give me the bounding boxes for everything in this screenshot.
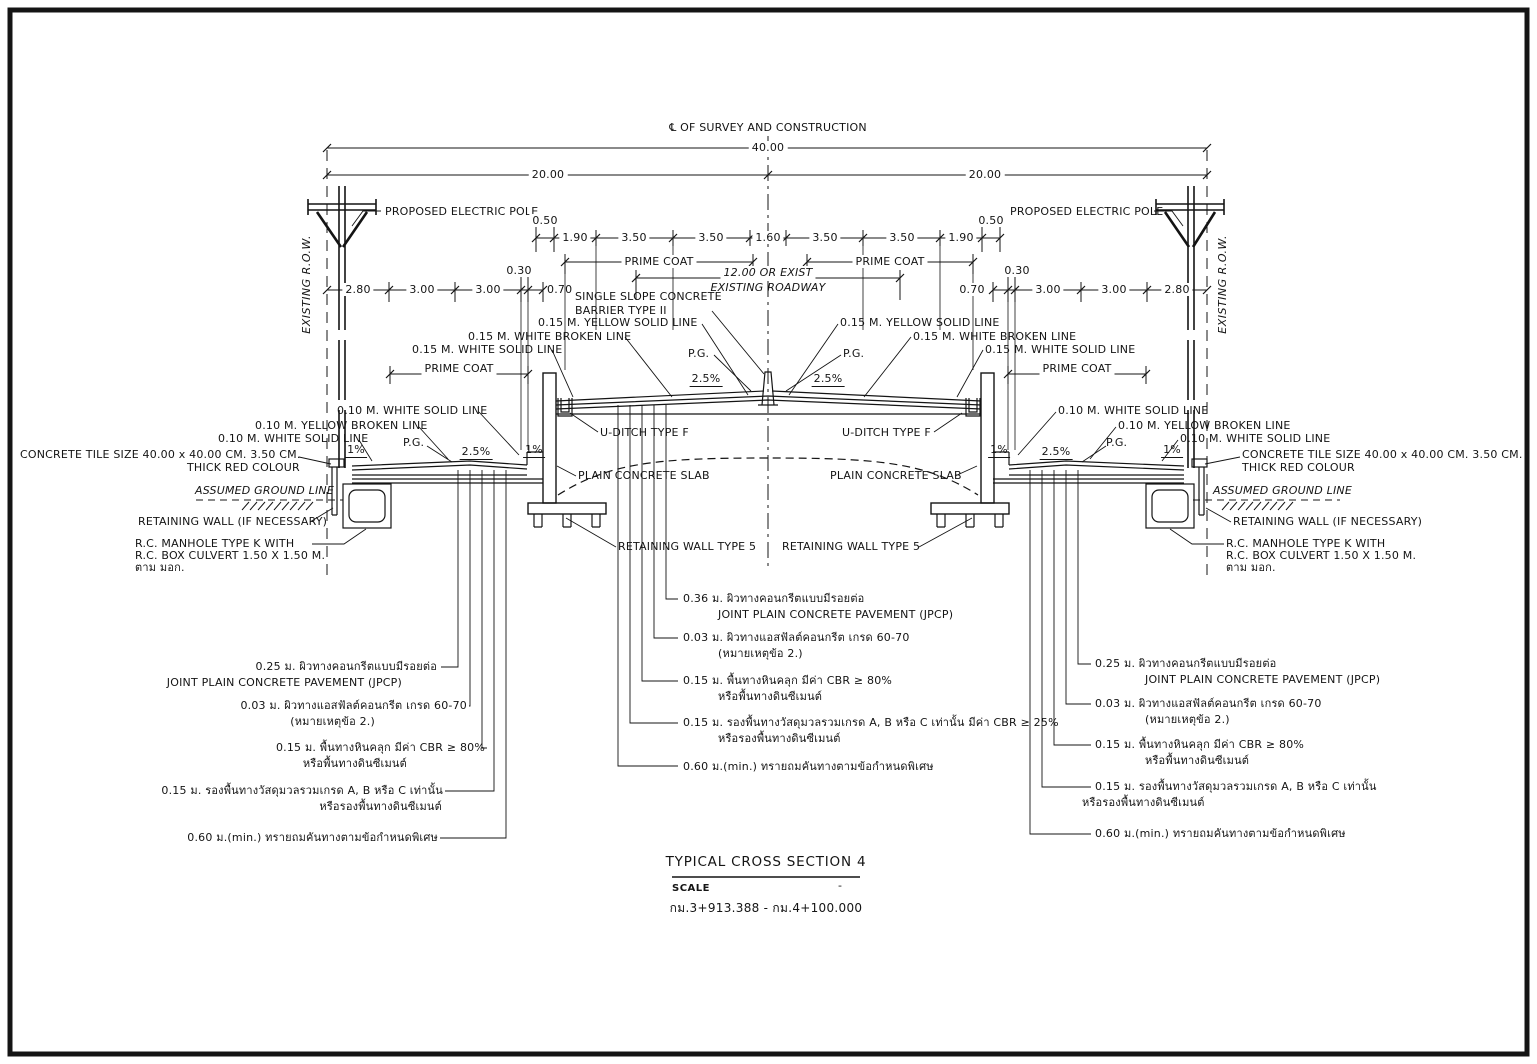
dim-service-right-0: 0.70 [956,283,987,296]
manhole-right-line3: ตาม มอก. [1226,561,1276,574]
right-layer-r3a: 0.15 ม. พื้นทางหินคลุก มีค่า CBR ≥ 80% [1095,738,1304,751]
retaining-wall5-label-right: RETAINING WALL TYPE 5 [782,540,920,553]
dim-service-right-1: 0.30 [1001,264,1032,277]
dim-lane-6: 3.50 [886,231,917,244]
dim-service-left-4: 0.70 [547,283,572,296]
pg-center-right: P.G. [843,347,864,360]
assumed-ground-left: ASSUMED GROUND LINE [195,484,334,497]
concrete-tile-left-line2: THICK RED COLOUR [187,461,300,474]
left-layer-r3a: 0.15 ม. พื้นทางหินคลุก มีค่า CBR ≥ 80% [276,741,485,754]
existing-row-right: EXISTING R.O.W. [1216,235,1229,334]
slope-1-right-b: 1% [1161,443,1183,456]
center-layer-r5a: 0.60 ม.(min.) ทรายถมคันทางตามข้อกำหนดพิเ… [683,760,934,773]
left-layer-r3b: หรือพื้นทางดินซีเมนต์ [303,757,407,770]
dim-lane-2: 3.50 [618,231,649,244]
right-layer-r1b: JOINT PLAIN CONCRETE PAVEMENT (JPCP) [1145,673,1380,686]
center-layer-r2a: 0.03 ม. ผิวทางแอสฟัลต์คอนกรีต เกรด 60-70 [683,631,910,644]
station-range: กม.3+913.388 - กม.4+100.000 [670,902,863,915]
white-broken-015-left: 0.15 M. WHITE BROKEN LINE [468,330,631,343]
u-ditch-label-left: U-DITCH TYPE F [600,426,689,439]
left-layer-r4b: หรือรองพื้นทางดินซีเมนต์ [319,800,442,813]
center-layer-r3a: 0.15 ม. พื้นทางหินคลุก มีค่า CBR ≥ 80% [683,674,892,687]
dim-lane-0: 0.50 [529,214,560,227]
white-solid-010-top-left: 0.10 M. WHITE SOLID LINE [337,404,487,417]
white-solid-015-right: 0.15 M. WHITE SOLID LINE [985,343,1135,356]
existing-row-left: EXISTING R.O.W. [300,235,313,334]
yellow-solid-015-left: 0.15 M. YELLOW SOLID LINE [538,316,698,329]
slope-1-left-b: 1% [523,443,545,456]
left-layer-r1a: 0.25 ม. ผิวทางคอนกรีตแบบมีรอยต่อ [256,660,437,673]
retaining-wall5-label-left: RETAINING WALL TYPE 5 [618,540,756,553]
left-layer-r5a: 0.60 ม.(min.) ทรายถมคันทางตามข้อกำหนดพิเ… [187,831,438,844]
slope-25-service-right: 2.5% [1040,445,1073,458]
dim-overall: 40.00 [749,141,788,154]
dim-lane-7: 1.90 [945,231,976,244]
right-layer-r4a: 0.15 ม. รองพื้นทางวัสดุมวลรวมเกรด A, B ห… [1095,780,1377,793]
prime-coat-outer-left: PRIME COAT [422,362,497,375]
dim-service-right-2: 3.00 [1032,283,1063,296]
right-layer-r2b: (หมายเหตุข้อ 2.) [1145,713,1230,726]
slope-1-left-a: 1% [345,443,367,456]
retaining-wall-necessary-right: RETAINING WALL (IF NECESSARY) [1233,515,1422,528]
right-layer-r5a: 0.60 ม.(min.) ทรายถมคันทางตามข้อกำหนดพิเ… [1095,827,1346,840]
retaining-wall-necessary-left: RETAINING WALL (IF NECESSARY) [138,515,327,528]
yellow-broken-010-left: 0.10 M. YELLOW BROKEN LINE [255,419,428,432]
right-layer-r2a: 0.03 ม. ผิวทางแอสฟัลต์คอนกรีต เกรด 60-70 [1095,697,1322,710]
white-solid-010-bot-right: 0.10 M. WHITE SOLID LINE [1180,432,1330,445]
dim-lane-5: 3.50 [809,231,840,244]
dim-lane-1: 1.90 [559,231,590,244]
pg-service-right: P.G. [1106,436,1127,449]
roadway-width-line2: EXISTING ROADWAY [711,281,826,294]
plain-slab-label-left: PLAIN CONCRETE SLAB [578,469,710,482]
dim-service-left-1: 3.00 [406,283,437,296]
electric-pole-label-right: PROPOSED ELECTRIC POLE [1010,205,1163,218]
concrete-tile-left-line1: CONCRETE TILE SIZE 40.00 x 40.00 CM. 3.5… [20,448,301,461]
prime-coat-center-right: PRIME COAT [853,255,928,268]
pg-service-left: P.G. [403,436,424,449]
dim-lane-4: 1.60 [752,231,783,244]
center-layer-r1a: 0.36 ม. ผิวทางคอนกรีตแบบมีรอยต่อ [683,592,864,605]
dim-service-left-3: 0.30 [503,264,534,277]
u-ditch-label-right: U-DITCH TYPE F [842,426,931,439]
left-layer-r2a: 0.03 ม. ผิวทางแอสฟัลต์คอนกรีต เกรด 60-70 [240,699,467,712]
roadway-width-line1: 12.00 OR EXIST [720,266,815,279]
concrete-tile-right-line1: CONCRETE TILE SIZE 40.00 x 40.00 CM. 3.5… [1242,448,1523,461]
center-layer-r4a: 0.15 ม. รองพื้นทางวัสดุมวลรวมเกรด A, B ห… [683,716,1059,729]
slope-1-right-a: 1% [988,443,1010,456]
assumed-ground-right: ASSUMED GROUND LINE [1213,484,1352,497]
layer-leaders-right [1030,470,1091,834]
drawing-sheet: ℄ OF SURVEY AND CONSTRUCTION 40.00 20.00… [0,0,1537,1064]
plain-slab-label-right: PLAIN CONCRETE SLAB [830,469,962,482]
white-solid-015-left: 0.15 M. WHITE SOLID LINE [412,343,562,356]
layer-leaders-center [618,405,678,766]
dim-lane-3: 3.50 [695,231,726,244]
scale-label: SCALE [672,882,710,895]
label-leaders [299,211,1240,547]
right-layer-r3b: หรือพื้นทางดินซีเมนต์ [1145,754,1249,767]
prime-coat-outer-right: PRIME COAT [1040,362,1115,375]
center-layer-r3b: หรือพื้นทางดินซีเมนต์ [718,690,822,703]
manhole-left-line3: ตาม มอก. [135,561,185,574]
yellow-broken-010-right: 0.10 M. YELLOW BROKEN LINE [1118,419,1291,432]
dim-half-left: 20.00 [529,168,568,181]
electric-pole-label-left: PROPOSED ELECTRIC POLE [385,205,538,218]
left-layer-r4a: 0.15 ม. รองพื้นทางวัสดุมวลรวมเกรด A, B ห… [161,784,443,797]
prime-coat-center-left: PRIME COAT [622,255,697,268]
dim-service-right-3: 3.00 [1098,283,1129,296]
centerline-label: ℄ OF SURVEY AND CONSTRUCTION [669,121,867,134]
left-layer-r2b: (หมายเหตุข้อ 2.) [290,715,375,728]
right-layer-r1a: 0.25 ม. ผิวทางคอนกรีตแบบมีรอยต่อ [1095,657,1276,670]
scale-value: - [838,879,842,892]
slope-25-service-left: 2.5% [460,445,493,458]
concrete-tile-right-line2: THICK RED COLOUR [1242,461,1355,474]
barrier-label-line1: SINGLE SLOPE CONCRETE [575,290,722,303]
dim-half-right: 20.00 [966,168,1005,181]
drawing-title: TYPICAL CROSS SECTION 4 [666,856,867,869]
center-layer-r4b: หรือรองพื้นทางดินซีเมนต์ [718,732,841,745]
left-layer-r1b: JOINT PLAIN CONCRETE PAVEMENT (JPCP) [167,676,402,689]
layer-leaders-left [440,470,506,838]
yellow-solid-015-right: 0.15 M. YELLOW SOLID LINE [840,316,1000,329]
dim-lane-8: 0.50 [975,214,1006,227]
dim-service-left-2: 3.00 [472,283,503,296]
pg-center-left: P.G. [688,347,709,360]
slope-25-center-left: 2.5% [690,372,723,385]
dim-service-right-4: 2.80 [1161,283,1192,296]
white-broken-015-right: 0.15 M. WHITE BROKEN LINE [913,330,1076,343]
right-layer-r4b: หรือรองพื้นทางดินซีเมนต์ [1082,796,1205,809]
white-solid-010-top-right: 0.10 M. WHITE SOLID LINE [1058,404,1208,417]
center-layer-r1b: JOINT PLAIN CONCRETE PAVEMENT (JPCP) [718,608,953,621]
dim-service-left-0: 2.80 [342,283,373,296]
center-layer-r2b: (หมายเหตุข้อ 2.) [718,647,803,660]
slope-25-center-right: 2.5% [812,372,845,385]
